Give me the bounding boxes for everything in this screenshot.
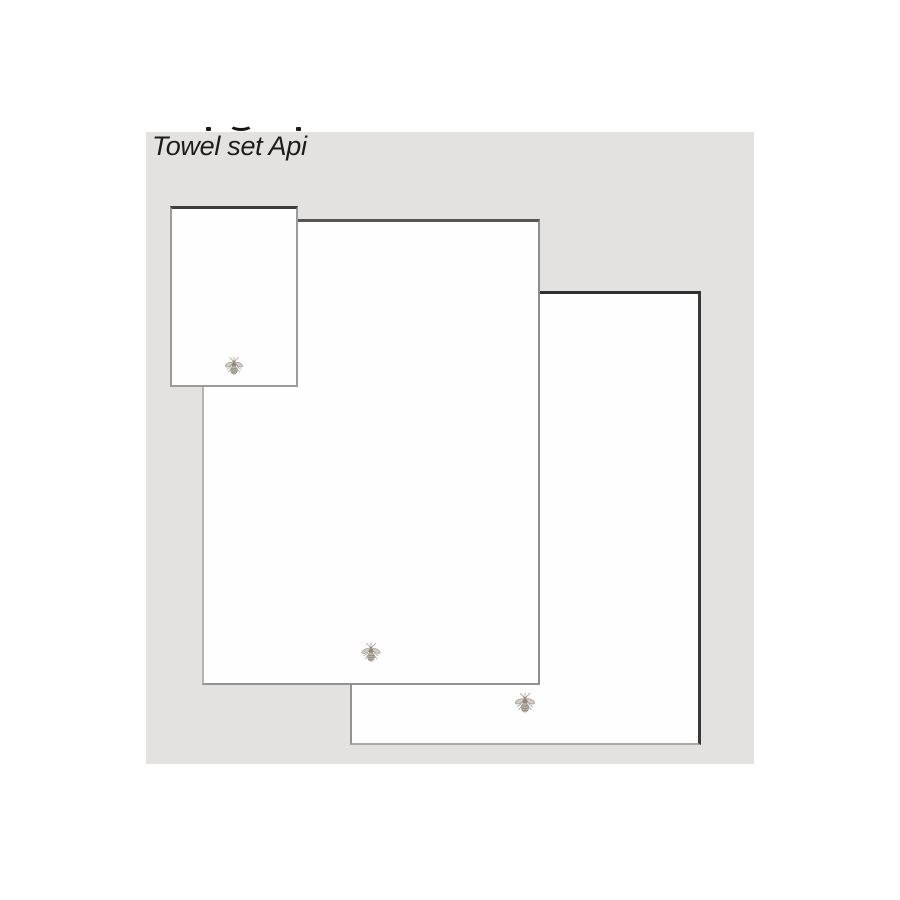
product-image[interactable]: Towel set Api bbox=[146, 132, 754, 764]
towel-small bbox=[170, 206, 298, 387]
page-canvas: Towel set Api bbox=[0, 0, 900, 900]
bee-icon bbox=[225, 356, 244, 377]
product-title: Towel set Api bbox=[152, 132, 307, 161]
cropped-text-fragment bbox=[229, 118, 253, 131]
bee-icon bbox=[515, 692, 536, 715]
bee-icon bbox=[361, 642, 381, 664]
